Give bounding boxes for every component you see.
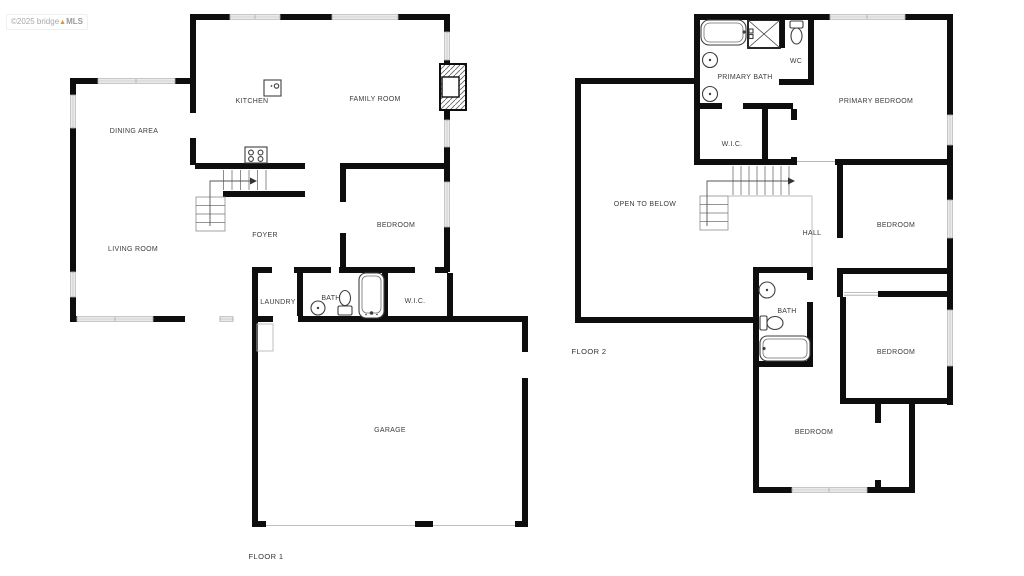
window-icon (445, 182, 449, 227)
room-label-bath-f2: BATH (777, 308, 796, 315)
room-label-family-room: FAMILY ROOM (349, 96, 400, 103)
window-icon (71, 95, 75, 128)
sink-icon (311, 301, 325, 315)
shower-icon (748, 20, 780, 48)
window-icon (220, 317, 233, 321)
room-label-bedroom-bottom: BEDROOM (795, 429, 833, 436)
room-label-primary-bath: PRIMARY BATH (717, 74, 772, 81)
floor2-walls (575, 14, 953, 493)
room-label-living-room: LIVING ROOM (108, 246, 158, 253)
window-icon (98, 79, 175, 83)
floor2-title: FLOOR 2 (572, 347, 607, 356)
window-icon (332, 15, 398, 19)
stairs-up-arrow-icon (788, 178, 795, 185)
floor-plan-canvas: DINING AREA KITCHEN FAMILY ROOM LIVING R… (0, 0, 1024, 576)
window-icon (792, 488, 867, 492)
toilet-icon (760, 316, 783, 330)
room-label-wic-f2: W.I.C. (722, 141, 743, 148)
window-icon (71, 272, 75, 297)
room-label-bath-f1: BATH (321, 295, 340, 302)
bathtub-icon (760, 336, 810, 361)
room-label-dining-area: DINING AREA (110, 128, 158, 135)
room-label-bedroom-upper-right: BEDROOM (877, 222, 915, 229)
sink-icon (703, 87, 718, 102)
room-label-hall: HALL (803, 230, 822, 237)
room-label-wic-f1: W.I.C. (405, 298, 426, 305)
floor-plan-page: ©2025 bridge▲MLS (0, 0, 1024, 576)
bathtub-icon (359, 273, 384, 318)
sink-icon (703, 53, 718, 68)
window-icon (445, 32, 449, 60)
window-icon (948, 200, 952, 238)
floor1-plan: DINING AREA KITCHEN FAMILY ROOM LIVING R… (70, 14, 528, 561)
window-icon (230, 15, 280, 19)
window-icon (445, 120, 449, 147)
door-swing-icon (257, 324, 273, 351)
window-icon (830, 15, 905, 19)
stove-icon (245, 147, 267, 163)
room-label-foyer: FOYER (252, 232, 278, 239)
kitchen-island-icon (264, 80, 281, 96)
bathtub-icon (701, 20, 746, 45)
room-label-laundry: LAUNDRY (260, 299, 295, 306)
room-label-kitchen: KITCHEN (236, 98, 269, 105)
room-label-open-to-below: OPEN TO BELOW (614, 201, 676, 208)
floor1-title: FLOOR 1 (249, 552, 284, 561)
room-label-bedroom-lower-right: BEDROOM (877, 349, 915, 356)
window-icon (948, 310, 952, 366)
floor2-windows (792, 15, 952, 492)
window-icon (77, 317, 153, 321)
stairs-icon (700, 166, 812, 267)
floor2-plan: PRIMARY BATH WC PRIMARY BEDROOM W.I.C. O… (572, 14, 953, 493)
closet-slider-icon (844, 293, 878, 296)
stairs-icon (196, 170, 266, 231)
room-label-primary-bedroom: PRIMARY BEDROOM (839, 98, 913, 105)
sink-icon (759, 282, 775, 298)
toilet-icon (790, 21, 803, 44)
window-icon (948, 115, 952, 145)
fireplace-icon (440, 64, 466, 110)
room-label-bedroom-f1: BEDROOM (377, 222, 415, 229)
room-label-wc: WC (790, 58, 802, 65)
room-label-garage: GARAGE (374, 427, 406, 434)
stairs-up-arrow-icon (250, 178, 257, 185)
